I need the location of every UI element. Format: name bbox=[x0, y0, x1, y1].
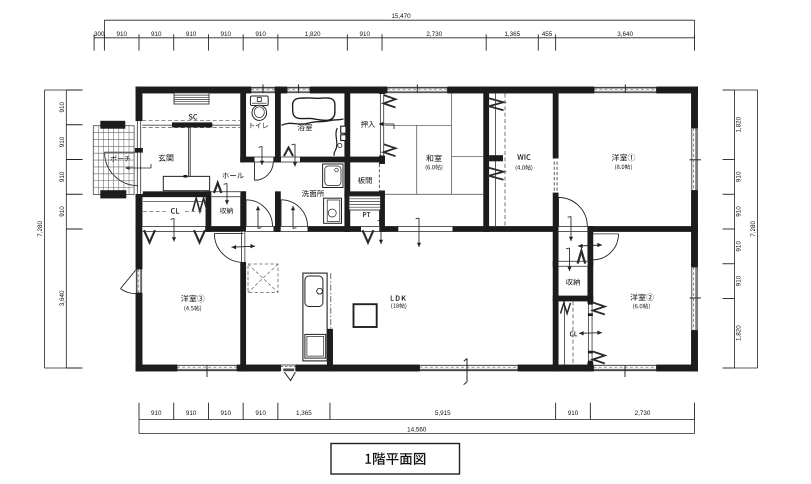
svg-text:910: 910 bbox=[255, 410, 266, 417]
svg-text:910: 910 bbox=[59, 171, 66, 182]
svg-text:910: 910 bbox=[59, 101, 66, 112]
svg-text:2,730: 2,730 bbox=[635, 410, 651, 417]
svg-text:3,640: 3,640 bbox=[59, 290, 66, 306]
svg-text:910: 910 bbox=[736, 206, 743, 217]
svg-text:910: 910 bbox=[221, 31, 232, 38]
svg-text:910: 910 bbox=[359, 31, 370, 38]
svg-text:1,820: 1,820 bbox=[736, 116, 743, 132]
svg-text:7,280: 7,280 bbox=[750, 221, 757, 237]
svg-text:910: 910 bbox=[151, 410, 162, 417]
svg-text:15,470: 15,470 bbox=[391, 13, 411, 20]
svg-text:2,730: 2,730 bbox=[426, 31, 442, 38]
svg-text:1,820: 1,820 bbox=[305, 31, 321, 38]
svg-text:910: 910 bbox=[186, 31, 197, 38]
svg-text:7,280: 7,280 bbox=[37, 221, 44, 237]
svg-text:300: 300 bbox=[94, 31, 105, 38]
svg-text:1,820: 1,820 bbox=[736, 325, 743, 341]
svg-text:14,560: 14,560 bbox=[407, 427, 427, 434]
svg-text:910: 910 bbox=[59, 136, 66, 147]
svg-text:910: 910 bbox=[221, 410, 232, 417]
svg-text:910: 910 bbox=[736, 241, 743, 252]
svg-text:1,365: 1,365 bbox=[296, 410, 312, 417]
svg-text:1,365: 1,365 bbox=[504, 31, 520, 38]
svg-text:910: 910 bbox=[736, 275, 743, 286]
svg-text:455: 455 bbox=[542, 31, 553, 38]
svg-text:5,915: 5,915 bbox=[435, 410, 451, 417]
svg-text:910: 910 bbox=[59, 206, 66, 217]
svg-text:910: 910 bbox=[736, 171, 743, 182]
svg-text:910: 910 bbox=[186, 410, 197, 417]
svg-text:910: 910 bbox=[255, 31, 266, 38]
svg-text:910: 910 bbox=[116, 31, 127, 38]
svg-text:910: 910 bbox=[568, 410, 579, 417]
svg-text:3,640: 3,640 bbox=[617, 31, 633, 38]
svg-text:910: 910 bbox=[151, 31, 162, 38]
